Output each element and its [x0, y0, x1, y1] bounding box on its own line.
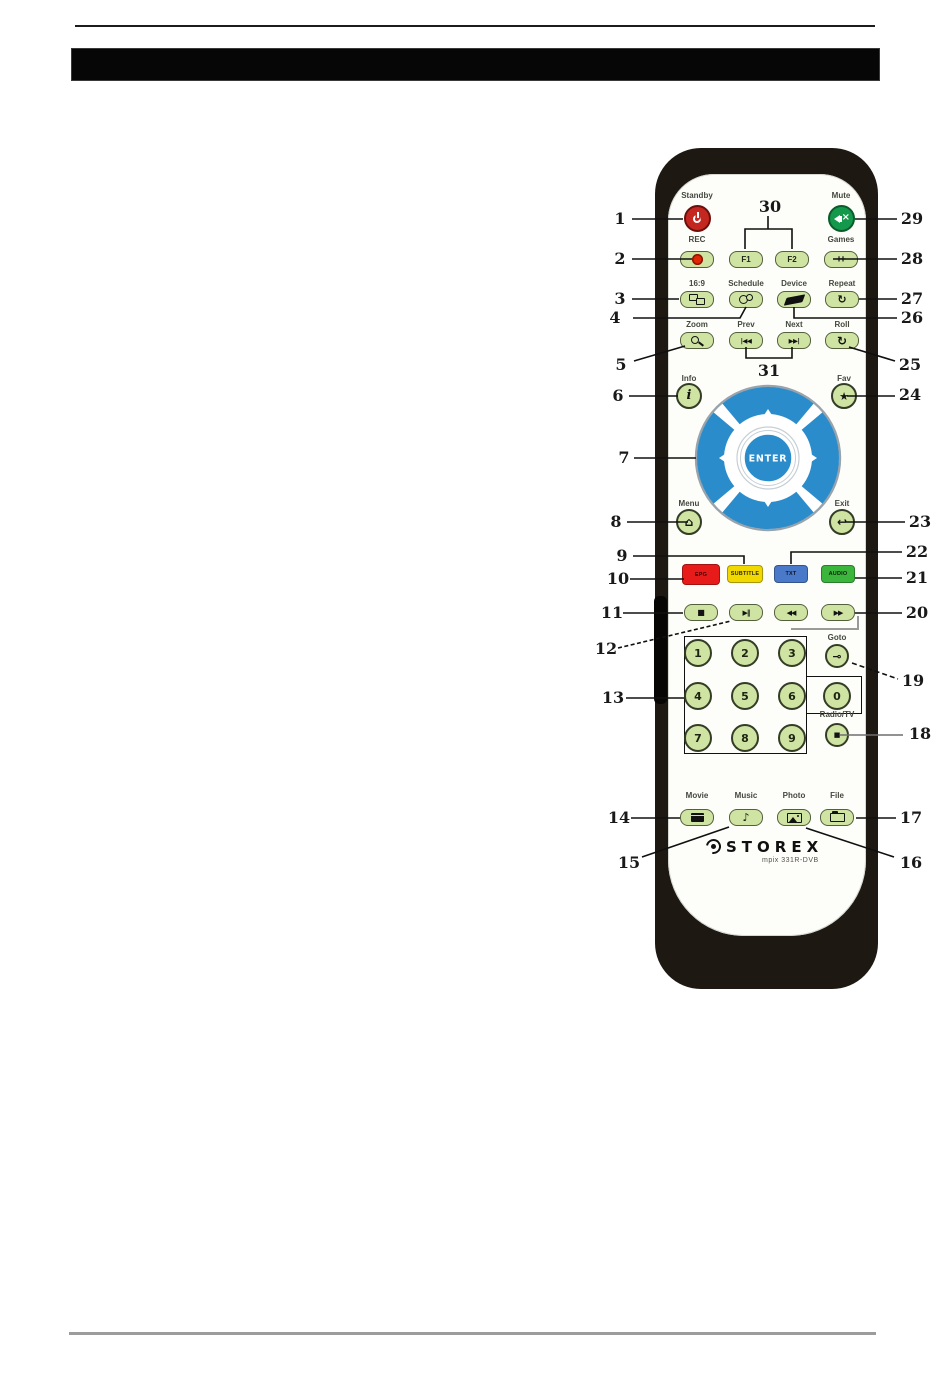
- music-button[interactable]: ♪: [729, 809, 763, 826]
- aspect-169-button[interactable]: [680, 291, 714, 308]
- rewind-button[interactable]: ◀◀: [774, 604, 808, 621]
- digit-3-button[interactable]: 3: [778, 639, 806, 667]
- callout-28: 28: [897, 249, 927, 268]
- subtitle-button[interactable]: SUBTITLE: [727, 565, 763, 583]
- menu-button[interactable]: ⌂: [676, 509, 702, 535]
- callout-6: 6: [603, 386, 633, 405]
- brand-logo: STOREX: [705, 838, 823, 856]
- device-button[interactable]: [777, 291, 811, 308]
- callout-8: 8: [601, 512, 631, 531]
- callout-22: 22: [902, 542, 932, 561]
- repeat-button[interactable]: ↻: [825, 291, 859, 308]
- stop-icon: ■: [697, 608, 705, 617]
- photo-button[interactable]: [777, 809, 811, 826]
- digit-2-button[interactable]: 2: [731, 639, 759, 667]
- gamepad-icon: ++: [836, 254, 844, 265]
- digit-1-button[interactable]: 1: [684, 639, 712, 667]
- callout-1: 1: [605, 209, 635, 228]
- radio-tv-label: Radio/TV: [820, 710, 855, 719]
- digit-5-button[interactable]: 5: [731, 682, 759, 710]
- next-track-icon: ▶▶|: [789, 337, 800, 345]
- callout-27: 27: [897, 289, 927, 308]
- prev-track-icon: |◀◀: [741, 337, 752, 345]
- storex-eye-icon: [705, 838, 722, 855]
- goto-icon: ⊸: [832, 650, 841, 663]
- callout-17: 17: [896, 808, 926, 827]
- square-icon: ■: [834, 731, 841, 739]
- roll-label: Roll: [834, 320, 849, 329]
- callout-24: 24: [895, 385, 925, 404]
- audio-button[interactable]: AUDIO: [821, 565, 855, 583]
- zoom-button[interactable]: [680, 332, 714, 349]
- txt-button[interactable]: TXT: [774, 565, 808, 583]
- repeat-label: Repeat: [829, 279, 856, 288]
- radio-tv-button[interactable]: ■: [825, 723, 849, 747]
- callout-20: 20: [902, 603, 932, 622]
- epg-button[interactable]: EPG: [682, 564, 720, 585]
- rec-dot-icon: [692, 254, 703, 265]
- callout-14: 14: [604, 808, 634, 827]
- digit-4-button[interactable]: 4: [684, 682, 712, 710]
- prev-label: Prev: [737, 320, 754, 329]
- menu-label: Menu: [679, 499, 700, 508]
- manual-page: Standby Mute × REC F1 F2 Games ++ 16:9 S…: [0, 0, 950, 1389]
- f1-button[interactable]: F1: [729, 251, 763, 268]
- info-label: Info: [682, 374, 697, 383]
- rec-label: REC: [689, 235, 706, 244]
- callout-10: 10: [603, 569, 633, 588]
- side-grip: [654, 596, 667, 704]
- callout-16: 16: [896, 853, 926, 872]
- movie-clapper-icon: [691, 813, 704, 822]
- callout-23: 23: [905, 512, 935, 531]
- dpad: ENTER: [694, 384, 842, 532]
- digit-9-button[interactable]: 9: [778, 724, 806, 752]
- rewind-icon: ◀◀: [787, 609, 796, 617]
- folder-icon: [830, 813, 845, 822]
- games-label: Games: [828, 235, 855, 244]
- digit-0-button[interactable]: 0: [823, 682, 851, 710]
- aspect-label: 16:9: [689, 279, 705, 288]
- photo-label: Photo: [783, 791, 806, 800]
- callout-29: 29: [897, 209, 927, 228]
- play-pause-icon: ▶‖: [743, 609, 750, 617]
- games-button[interactable]: ++: [824, 251, 858, 268]
- file-label: File: [830, 791, 844, 800]
- file-button[interactable]: [820, 809, 854, 826]
- callout-13: 13: [598, 688, 628, 707]
- enter-text: ENTER: [749, 454, 788, 465]
- title-banner: [71, 48, 880, 81]
- digit-6-button[interactable]: 6: [778, 682, 806, 710]
- callout-11: 11: [597, 603, 627, 622]
- power-icon: [691, 212, 704, 225]
- callout-19: 19: [898, 671, 928, 690]
- zoom-label: Zoom: [686, 320, 708, 329]
- callout-30: 30: [755, 197, 785, 216]
- top-rule: [75, 25, 875, 27]
- photo-picture-icon: [787, 813, 802, 823]
- schedule-label: Schedule: [728, 279, 764, 288]
- clock-icon: [738, 294, 754, 305]
- f2-button[interactable]: F2: [775, 251, 809, 268]
- model-text: mpix 331R-DVB: [762, 857, 819, 864]
- music-note-icon: ♪: [742, 811, 749, 824]
- device-label: Device: [781, 279, 807, 288]
- rotate-icon: ↻: [837, 334, 847, 348]
- callout-15: 15: [614, 853, 644, 872]
- exit-button[interactable]: ↩: [829, 509, 855, 535]
- return-arrow-icon: ↩: [837, 515, 847, 529]
- info-icon: i: [687, 388, 692, 403]
- standby-button[interactable]: [684, 205, 711, 232]
- mute-label: Mute: [832, 191, 851, 200]
- rec-button[interactable]: [680, 251, 714, 268]
- magnifier-icon: [690, 335, 704, 347]
- mute-button[interactable]: ×: [828, 205, 855, 232]
- callout-21: 21: [902, 568, 932, 587]
- bottom-rule: [69, 1332, 876, 1335]
- callout-4: 4: [600, 308, 630, 327]
- movie-label: Movie: [686, 791, 709, 800]
- exit-label: Exit: [835, 499, 850, 508]
- drive-icon: [783, 294, 805, 305]
- roll-button[interactable]: ↻: [825, 332, 859, 349]
- play-pause-button[interactable]: ▶‖: [729, 604, 763, 621]
- fav-label: Fav: [837, 374, 851, 383]
- callout-18: 18: [905, 724, 935, 743]
- callout-9: 9: [607, 546, 637, 565]
- music-label: Music: [735, 791, 758, 800]
- callout-12: 12: [591, 639, 621, 658]
- callout-31: 31: [754, 361, 784, 380]
- callout-7: 7: [609, 448, 639, 467]
- stop-button[interactable]: ■: [684, 604, 718, 621]
- repeat-loop-icon: ↻: [837, 293, 846, 306]
- digit-8-button[interactable]: 8: [731, 724, 759, 752]
- digit-7-button[interactable]: 7: [684, 724, 712, 752]
- next-label: Next: [785, 320, 802, 329]
- home-icon: ⌂: [685, 515, 694, 529]
- callout-5: 5: [606, 355, 636, 374]
- forward-button[interactable]: ▶▶: [821, 604, 855, 621]
- callout-25: 25: [895, 355, 925, 374]
- fast-forward-icon: ▶▶: [834, 609, 843, 617]
- next-button[interactable]: ▶▶|: [777, 332, 811, 349]
- mute-speaker-icon: ×: [833, 213, 850, 225]
- movie-button[interactable]: [680, 809, 714, 826]
- standby-label: Standby: [681, 191, 713, 200]
- screen-ratio-icon: [689, 294, 705, 305]
- callout-3: 3: [605, 289, 635, 308]
- goto-label: Goto: [828, 633, 847, 642]
- goto-button[interactable]: ⊸: [825, 644, 849, 668]
- callout-26: 26: [897, 308, 927, 327]
- callout-2: 2: [605, 249, 635, 268]
- prev-button[interactable]: |◀◀: [729, 332, 763, 349]
- schedule-button[interactable]: [729, 291, 763, 308]
